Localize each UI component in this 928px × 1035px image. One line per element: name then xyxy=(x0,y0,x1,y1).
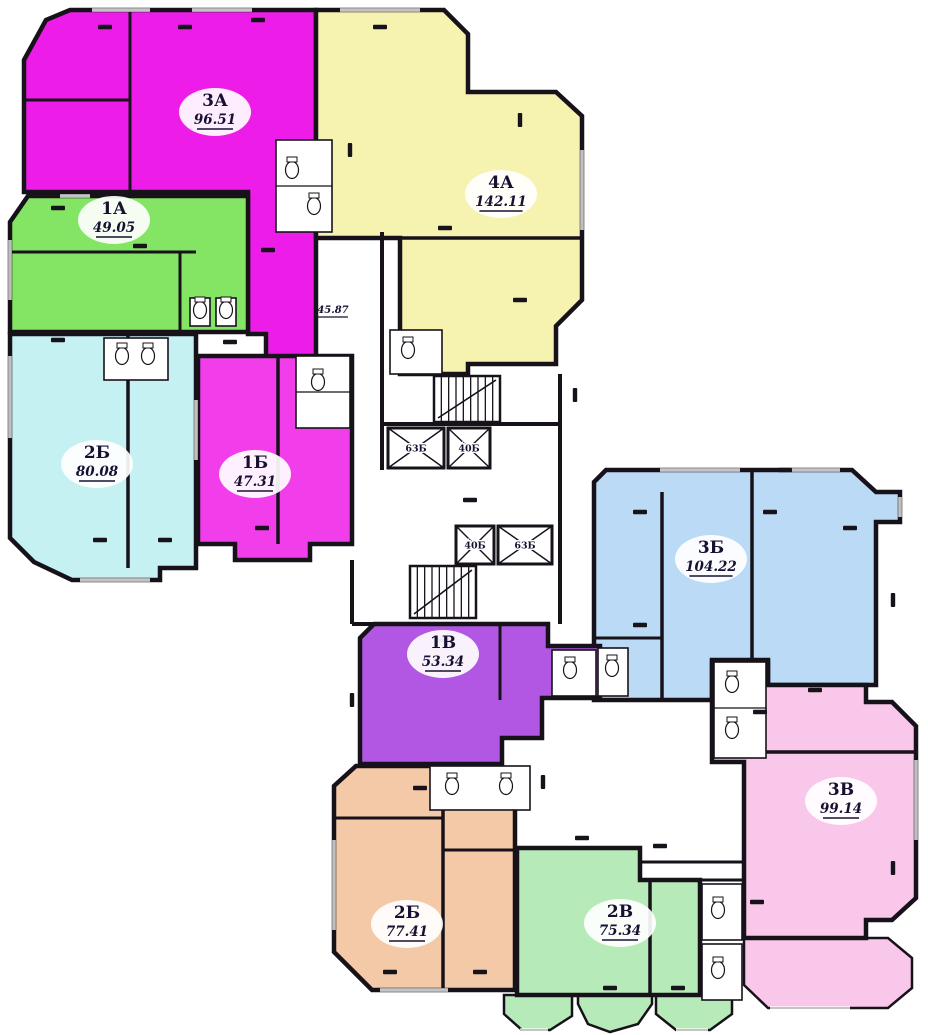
apartment-id-label: 3Б xyxy=(698,538,724,558)
balcony-bay xyxy=(578,995,652,1032)
cistern-icon xyxy=(117,343,127,348)
toilet-icon xyxy=(220,302,233,319)
toilet-icon xyxy=(312,374,325,391)
dimension-mark xyxy=(438,226,452,230)
toilet-icon xyxy=(286,162,299,179)
cistern-icon xyxy=(287,157,297,162)
apartment-2v-label: 2В75.34 xyxy=(584,899,656,947)
apartment-area-label: 142.11 xyxy=(475,194,527,210)
apartment-area-label: 49.05 xyxy=(93,220,135,236)
apartment-shape xyxy=(316,10,582,374)
elevator-shaft-upper-right: 40Б xyxy=(448,428,490,468)
apartment-2b-west-label: 2Б80.08 xyxy=(61,440,133,488)
apartment-3a-label: 3А96.51 xyxy=(179,88,251,136)
apartment-area-label: 53.34 xyxy=(422,654,464,670)
fixture-room xyxy=(104,338,168,380)
dimension-mark xyxy=(513,298,527,302)
dimension-mark xyxy=(573,388,577,402)
toilet-icon xyxy=(194,302,207,319)
toilet-icon xyxy=(308,198,321,215)
apartment-area-label: 96.51 xyxy=(194,112,236,128)
elevator-shaft-lower-right: 63Б xyxy=(498,526,552,564)
dimension-mark xyxy=(843,526,857,530)
apartment-id-label: 1А xyxy=(101,199,127,219)
cistern-icon xyxy=(447,773,457,778)
toilet-icon xyxy=(564,662,577,679)
cistern-icon xyxy=(195,297,205,302)
apartment-area-label: 99.14 xyxy=(820,801,862,817)
balcony-bay xyxy=(744,938,912,1008)
toilet-icon xyxy=(116,348,129,365)
apartment-id-label: 3А xyxy=(202,91,228,111)
toilet-icon xyxy=(712,962,725,979)
dimension-mark xyxy=(251,18,265,22)
cistern-icon xyxy=(313,369,323,374)
dimension-mark xyxy=(383,970,397,974)
apartment-4a-label: 4А142.11 xyxy=(465,170,537,218)
cistern-icon xyxy=(309,193,319,198)
elevator-label: 63Б xyxy=(405,444,426,455)
cistern-icon xyxy=(565,657,575,662)
dimension-mark xyxy=(223,340,237,344)
toilet-icon xyxy=(712,902,725,919)
elevator-shaft-lower-left: 40Б xyxy=(456,526,494,564)
dimension-mark xyxy=(541,775,545,789)
bathroom-fixture xyxy=(276,140,332,232)
elevator-label: 40Б xyxy=(464,541,485,552)
elevator-shaft-upper-left: 63Б xyxy=(388,428,444,468)
apartment-area-label: 104.22 xyxy=(685,559,737,575)
dimension-mark xyxy=(603,986,617,990)
cistern-icon xyxy=(713,897,723,902)
dimension-mark xyxy=(778,468,792,472)
balcony-bay xyxy=(504,995,572,1030)
apartment-4a xyxy=(316,10,582,374)
dimension-mark xyxy=(158,538,172,542)
elevator-label: 40Б xyxy=(458,444,479,455)
apartment-1a-label: 1А49.05 xyxy=(78,196,150,244)
bathroom-fixture xyxy=(190,297,210,326)
bathroom-fixture xyxy=(702,944,742,1000)
staircase-upper xyxy=(434,376,500,422)
dimension-mark xyxy=(575,836,589,840)
cistern-icon xyxy=(607,655,617,660)
dimension-mark xyxy=(891,593,895,607)
cistern-icon xyxy=(403,337,413,342)
dimension-mark xyxy=(348,143,352,157)
dimension-mark xyxy=(808,688,822,692)
apartment-id-label: 1В xyxy=(430,633,456,653)
bathroom-fixture xyxy=(598,648,628,696)
apartment-id-label: 4А xyxy=(488,173,514,193)
dimension-mark xyxy=(753,710,767,714)
cistern-icon xyxy=(727,717,737,722)
dimension-mark xyxy=(653,844,667,848)
apartment-id-label: 3В xyxy=(828,780,854,800)
apartment-3v-label: 3В99.14 xyxy=(805,777,877,825)
bathroom-fixture xyxy=(552,650,596,696)
dimension-mark xyxy=(350,693,354,707)
toilet-icon xyxy=(726,676,739,693)
cistern-icon xyxy=(143,343,153,348)
apartment-3b-label: 3Б104.22 xyxy=(675,535,747,583)
apartment-2b-south-label: 2Б77.41 xyxy=(371,900,443,948)
floor-plan-svg: 63Б40Б40Б63Б3А96.514А142.111А49.052Б80.0… xyxy=(0,0,928,1035)
apartment-1b-label: 1Б47.31 xyxy=(219,450,291,498)
cistern-icon xyxy=(713,957,723,962)
dimension-mark xyxy=(373,25,387,29)
dimension-mark xyxy=(51,338,65,342)
bathroom-fixture xyxy=(104,338,168,380)
bathroom-fixture xyxy=(390,330,442,374)
bathroom-fixture xyxy=(430,766,530,810)
toilet-icon xyxy=(606,660,619,677)
bathroom-fixture xyxy=(296,356,350,428)
apartment-area-label: 75.34 xyxy=(599,923,641,939)
toilet-icon xyxy=(446,778,459,795)
dimension-mark xyxy=(51,206,65,210)
apartment-id-label: 2Б xyxy=(394,903,420,923)
dimension-mark xyxy=(463,498,477,502)
toilet-icon xyxy=(500,778,513,795)
dimension-mark xyxy=(750,900,764,904)
apartment-area-label: 80.08 xyxy=(76,464,119,480)
hall-area-label: 45.87 xyxy=(317,305,348,316)
cistern-icon xyxy=(221,297,231,302)
dimension-mark xyxy=(133,244,147,248)
dimension-mark xyxy=(473,970,487,974)
dimension-mark xyxy=(98,25,112,29)
dimension-mark xyxy=(763,510,777,514)
floor-plan: 63Б40Б40Б63Б3А96.514А142.111А49.052Б80.0… xyxy=(0,0,928,1035)
cistern-icon xyxy=(501,773,511,778)
bathroom-fixture xyxy=(216,297,236,326)
apartment-id-label: 1Б xyxy=(242,453,268,473)
toilet-icon xyxy=(402,342,415,359)
dimension-mark xyxy=(255,526,269,530)
elevator-label: 63Б xyxy=(514,541,535,552)
dimension-mark xyxy=(93,538,107,542)
apartment-1v-label: 1В53.34 xyxy=(407,630,479,678)
apartment-area-label: 47.31 xyxy=(234,474,276,490)
dimension-mark xyxy=(178,25,192,29)
dimension-mark xyxy=(891,861,895,875)
dimension-mark xyxy=(413,786,427,790)
dimension-mark xyxy=(518,113,522,127)
bathroom-fixture xyxy=(702,884,742,940)
dimension-mark xyxy=(633,510,647,514)
dimension-mark xyxy=(633,623,647,627)
apartment-id-label: 2В xyxy=(607,902,633,922)
fixture-room xyxy=(390,330,442,374)
toilet-icon xyxy=(726,722,739,739)
apartment-id-label: 2Б xyxy=(84,443,110,463)
cistern-icon xyxy=(727,671,737,676)
apartment-area-label: 77.41 xyxy=(386,924,428,940)
staircase-lower xyxy=(410,566,476,618)
toilet-icon xyxy=(142,348,155,365)
fixture-room xyxy=(430,766,530,810)
dimension-mark xyxy=(671,986,685,990)
dimension-mark xyxy=(261,248,275,252)
